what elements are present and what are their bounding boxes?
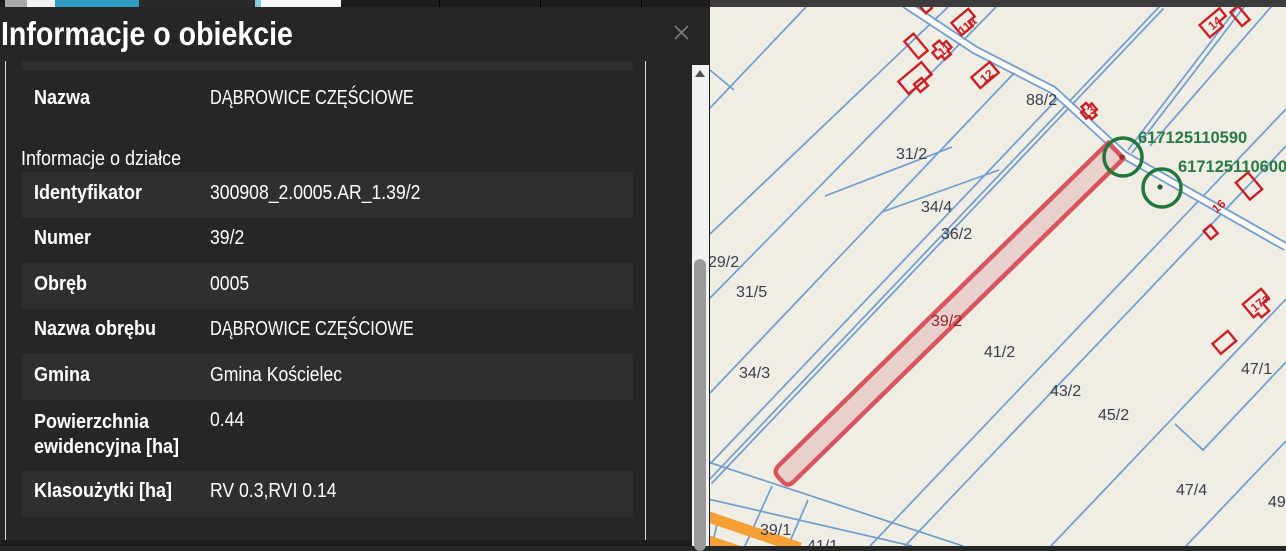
svg-text:39/1: 39/1 xyxy=(760,522,791,539)
svg-text:43/2: 43/2 xyxy=(1050,383,1081,400)
svg-text:617125110600: 617125110600 xyxy=(1178,158,1286,176)
svg-text:47/4: 47/4 xyxy=(1176,482,1207,499)
svg-text:41/2: 41/2 xyxy=(984,344,1015,361)
svg-text:41/1: 41/1 xyxy=(807,538,838,546)
svg-text:31/5: 31/5 xyxy=(736,284,767,301)
svg-text:29/2: 29/2 xyxy=(710,254,739,271)
svg-text:617125110590: 617125110590 xyxy=(1138,129,1247,147)
svg-text:45/2: 45/2 xyxy=(1098,407,1129,424)
svg-text:47/1: 47/1 xyxy=(1241,361,1272,378)
svg-text:36/2: 36/2 xyxy=(941,226,972,243)
svg-text:31/2: 31/2 xyxy=(896,146,927,163)
svg-text:34/4: 34/4 xyxy=(921,199,952,216)
svg-text:34/3: 34/3 xyxy=(739,365,770,382)
svg-text:49/4: 49/4 xyxy=(1268,494,1286,511)
svg-text:88/2: 88/2 xyxy=(1026,92,1057,109)
svg-text:39/2: 39/2 xyxy=(931,313,962,330)
